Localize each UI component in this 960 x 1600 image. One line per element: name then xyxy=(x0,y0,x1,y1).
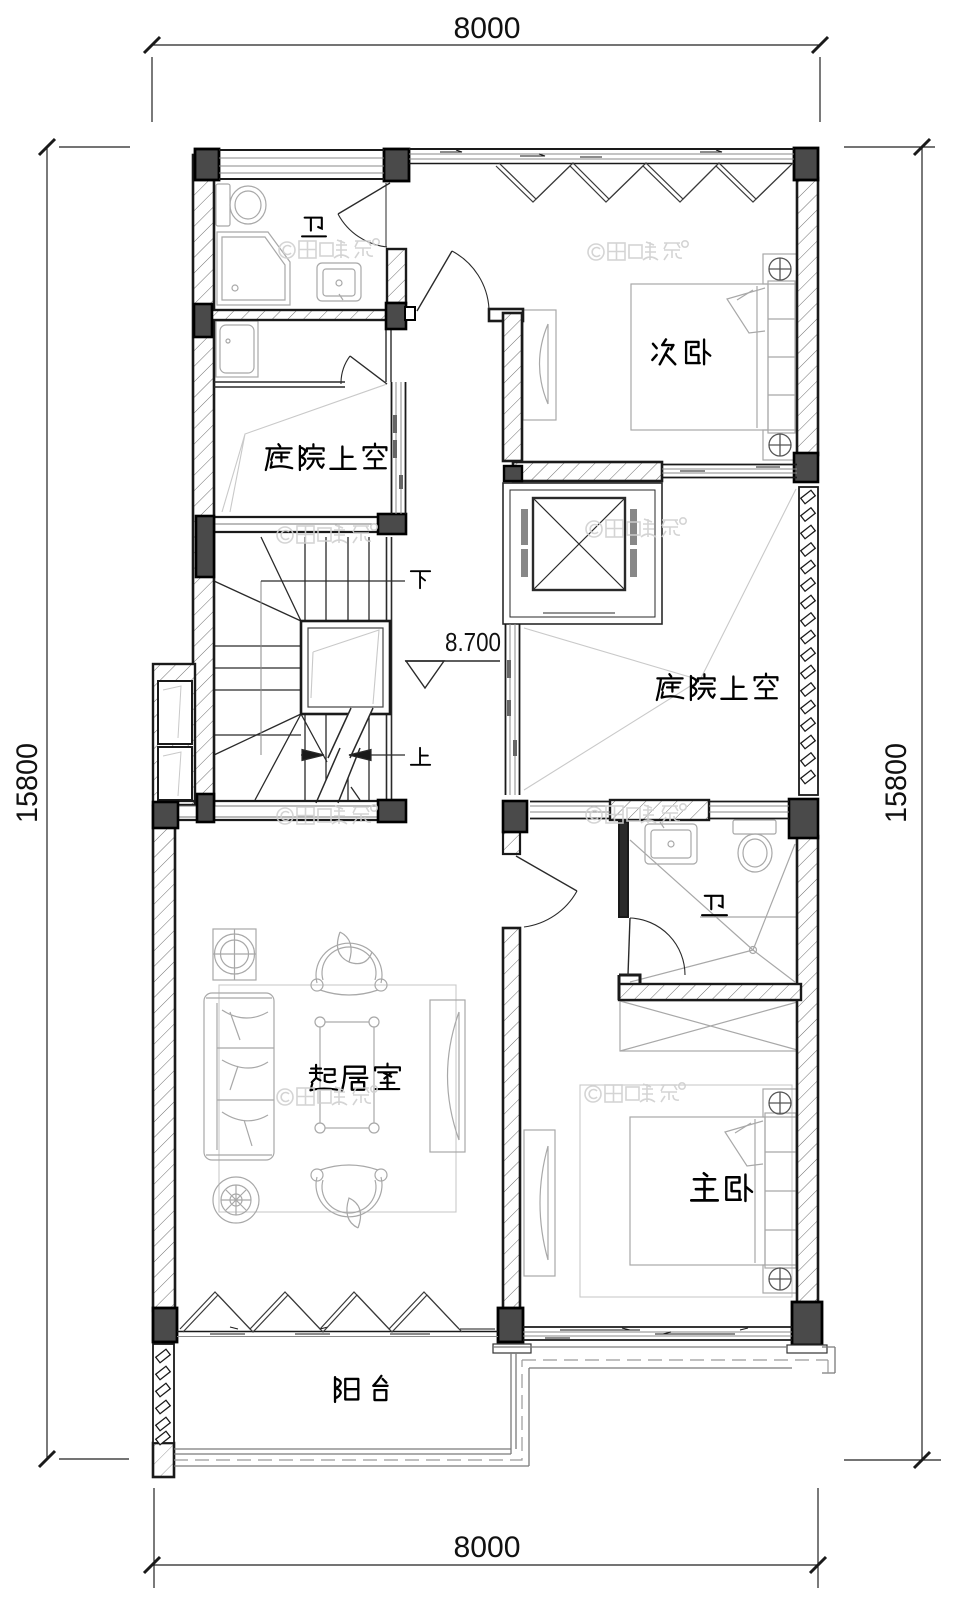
svg-text:8.700: 8.700 xyxy=(445,627,501,657)
svg-text:8000: 8000 xyxy=(454,1531,521,1564)
svg-text:15800: 15800 xyxy=(880,743,913,823)
svg-text:8000: 8000 xyxy=(454,12,521,45)
svg-text:15800: 15800 xyxy=(11,743,44,823)
